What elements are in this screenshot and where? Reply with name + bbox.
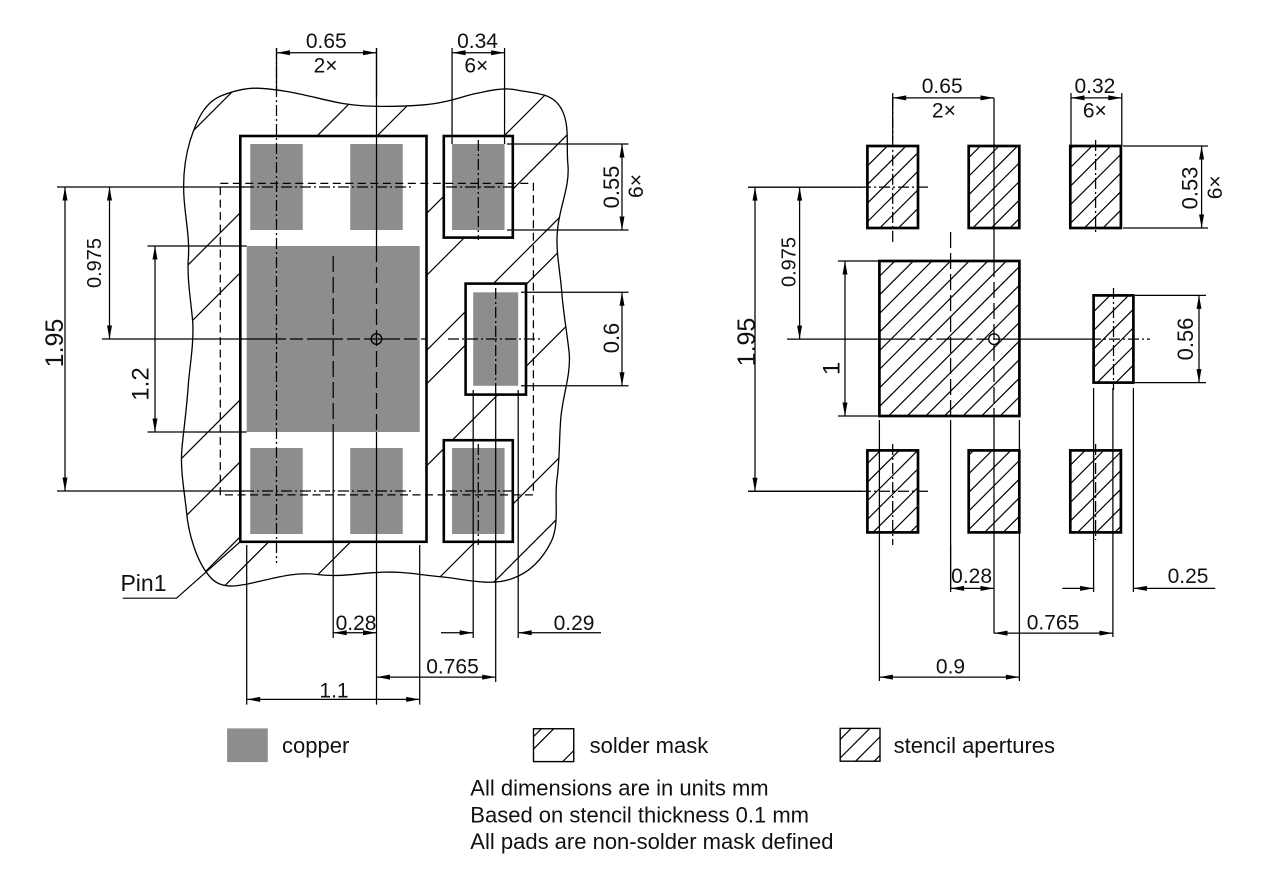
- svg-text:6×: 6×: [1204, 175, 1227, 199]
- svg-text:1.95: 1.95: [41, 319, 69, 368]
- svg-text:All dimensions are in units mm: All dimensions are in units mm: [470, 776, 768, 801]
- svg-text:1.2: 1.2: [128, 367, 155, 400]
- svg-text:0.34: 0.34: [457, 30, 498, 53]
- svg-text:0.765: 0.765: [1027, 612, 1080, 635]
- svg-text:0.9: 0.9: [936, 656, 965, 679]
- svg-text:1.95: 1.95: [733, 318, 761, 367]
- svg-text:0.65: 0.65: [306, 30, 347, 53]
- svg-text:0.56: 0.56: [1173, 318, 1198, 361]
- svg-text:0.32: 0.32: [1074, 75, 1115, 98]
- svg-text:0.29: 0.29: [554, 612, 595, 635]
- svg-text:6×: 6×: [625, 174, 648, 198]
- svg-text:0.65: 0.65: [922, 75, 963, 98]
- svg-text:6×: 6×: [1083, 99, 1107, 122]
- svg-text:1.1: 1.1: [319, 680, 348, 703]
- svg-text:solder mask: solder mask: [590, 733, 710, 758]
- svg-text:0.53: 0.53: [1178, 167, 1203, 210]
- svg-text:All pads are non-solder mask d: All pads are non-solder mask defined: [470, 829, 833, 854]
- svg-text:Pin1: Pin1: [120, 570, 166, 596]
- svg-text:0.55: 0.55: [599, 166, 624, 209]
- svg-text:copper: copper: [282, 733, 349, 758]
- svg-text:0.28: 0.28: [336, 612, 377, 635]
- svg-text:0.975: 0.975: [84, 238, 106, 288]
- svg-text:0.765: 0.765: [426, 656, 479, 679]
- svg-text:0.28: 0.28: [951, 565, 992, 588]
- svg-text:2×: 2×: [932, 99, 956, 122]
- svg-text:0.25: 0.25: [1168, 565, 1209, 588]
- svg-text:6×: 6×: [464, 54, 488, 77]
- svg-text:2×: 2×: [314, 54, 338, 77]
- svg-text:Based on stencil thickness 0.1: Based on stencil thickness 0.1 mm: [470, 802, 809, 827]
- svg-text:0.6: 0.6: [599, 323, 624, 354]
- svg-text:stencil apertures: stencil apertures: [894, 733, 1055, 758]
- svg-text:0.975: 0.975: [779, 237, 801, 287]
- svg-text:1: 1: [819, 362, 846, 375]
